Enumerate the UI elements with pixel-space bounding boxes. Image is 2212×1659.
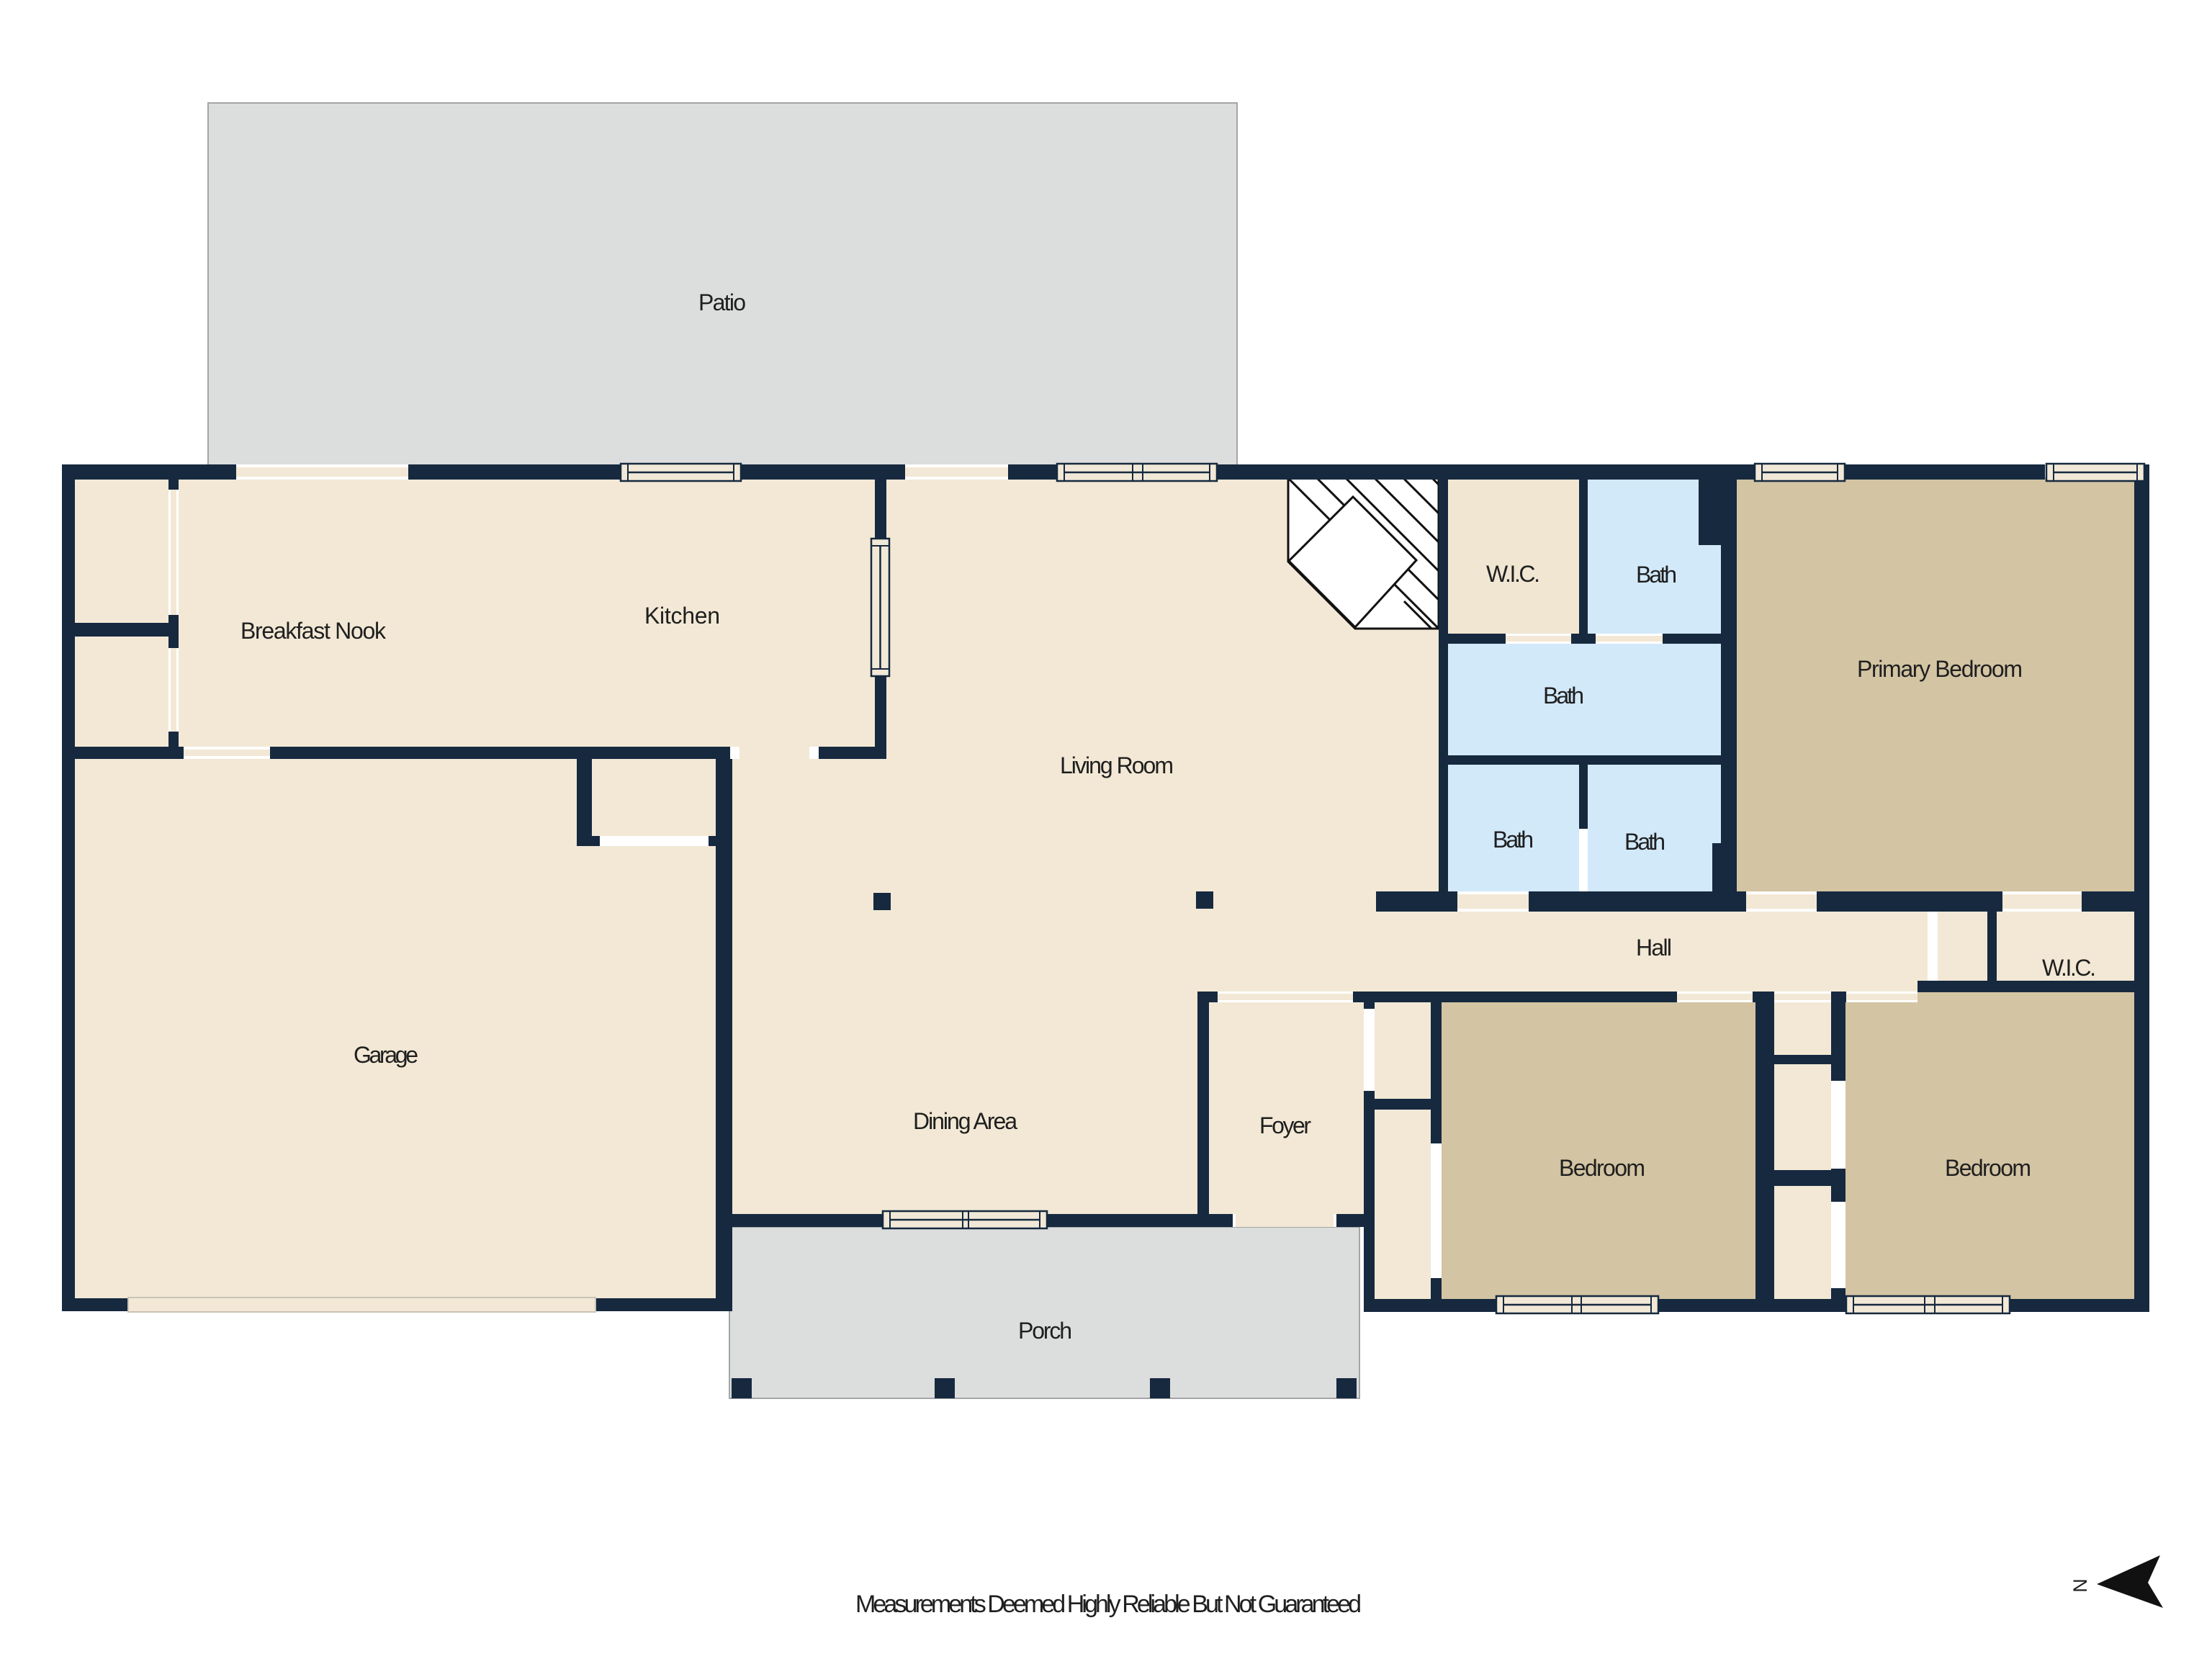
- svg-text:Breakfast Nook: Breakfast Nook: [240, 618, 387, 644]
- svg-text:Porch: Porch: [1018, 1318, 1072, 1344]
- svg-text:Primary Bedroom: Primary Bedroom: [1857, 656, 2023, 682]
- svg-text:Patio: Patio: [698, 289, 746, 315]
- svg-text:Kitchen: Kitchen: [644, 603, 720, 629]
- svg-text:Bedroom: Bedroom: [1945, 1155, 2031, 1181]
- svg-text:Dining Area: Dining Area: [913, 1108, 1017, 1134]
- svg-text:Bath: Bath: [1636, 562, 1677, 588]
- svg-text:W.I.C.: W.I.C.: [2042, 955, 2096, 981]
- svg-text:W.I.C.: W.I.C.: [1486, 561, 1540, 587]
- svg-text:Bath: Bath: [1493, 827, 1534, 853]
- svg-text:Garage: Garage: [354, 1042, 418, 1068]
- svg-text:Bedroom: Bedroom: [1559, 1155, 1645, 1181]
- svg-text:Hall: Hall: [1636, 935, 1672, 961]
- svg-text:Bath: Bath: [1543, 683, 1584, 709]
- svg-text:Bath: Bath: [1624, 829, 1665, 855]
- svg-text:Foyer: Foyer: [1259, 1112, 1311, 1138]
- svg-text:Measurements Deemed Highly Rel: Measurements Deemed Highly Reliable But …: [855, 1591, 1362, 1618]
- svg-text:N: N: [2069, 1578, 2091, 1593]
- svg-text:Living Room: Living Room: [1060, 752, 1174, 778]
